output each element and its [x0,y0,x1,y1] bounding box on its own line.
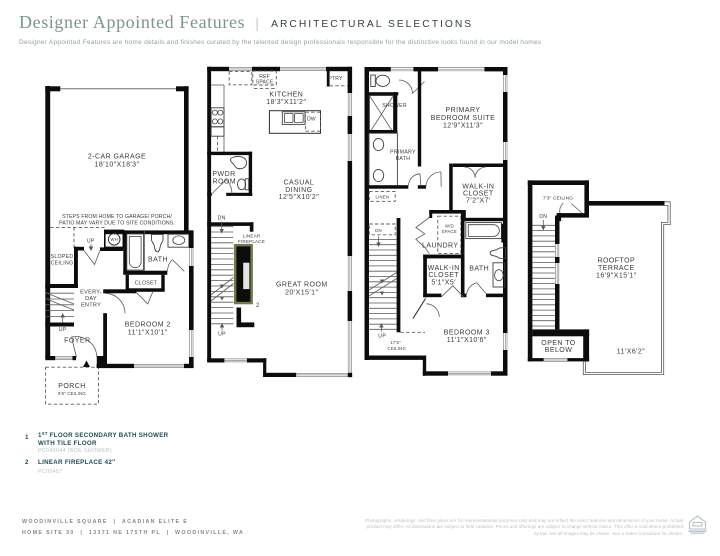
svg-text:W/D: W/D [445,223,454,228]
svg-text:7′2″X7′: 7′2″X7′ [466,197,491,204]
svg-text:BATH: BATH [396,156,411,162]
svg-text:GREAT ROOM: GREAT ROOM [276,282,328,289]
svg-text:WALK-IN: WALK-IN [462,183,494,190]
svg-text:18′10″X18′3″: 18′10″X18′3″ [95,162,140,169]
svg-text:BATH: BATH [469,266,489,273]
svg-text:UP: UP [59,327,67,333]
svg-text:CASUAL: CASUAL [284,180,315,187]
svg-text:WALK-IN: WALK-IN [428,265,460,272]
svg-text:CLOSET: CLOSET [135,280,158,286]
svg-text:UP: UP [87,238,95,244]
svg-text:DN: DN [375,228,382,233]
svg-text:PWDR: PWDR [212,171,235,178]
svg-text:SLOPED: SLOPED [51,254,74,260]
svg-text:2-CAR GARAGE: 2-CAR GARAGE [88,154,146,161]
svg-text:BELOW: BELOW [545,347,573,354]
svg-text:20′X15′1″: 20′X15′1″ [285,290,318,297]
svg-text:PORCH: PORCH [58,383,86,390]
svg-text:ENTRY: ENTRY [81,303,101,309]
svg-text:FOYER: FOYER [64,337,90,344]
svg-text:WH: WH [110,237,118,242]
svg-text:DINING: DINING [285,187,312,194]
svg-text:CEILING: CEILING [387,346,406,351]
svg-text:SPACE: SPACE [442,229,457,234]
svg-text:ROOM: ROOM [213,179,237,186]
svg-text:CEILING: CEILING [51,261,74,267]
svg-text:DN: DN [539,214,547,220]
svg-text:17′5″: 17′5″ [390,340,401,345]
svg-text:TERRACE: TERRACE [598,265,635,272]
svg-text:12′5″X10′2″: 12′5″X10′2″ [279,194,320,201]
svg-text:18′3″X11′2″: 18′3″X11′2″ [266,99,306,106]
svg-text:UP: UP [378,333,386,339]
svg-text:STEPS FROM HOME TO GARAGE/ POR: STEPS FROM HOME TO GARAGE/ PORCH/ [62,214,172,220]
svg-text:LAUNDRY: LAUNDRY [422,242,458,249]
svg-text:UP: UP [218,331,226,337]
svg-text:2: 2 [256,303,260,309]
svg-text:5′1″X5′: 5′1″X5′ [431,279,456,286]
svg-text:11′1″X10′1″: 11′1″X10′1″ [128,330,168,337]
svg-text:BEDROOM 2: BEDROOM 2 [125,322,171,329]
svg-text:11′1″X10′6″: 11′1″X10′6″ [447,337,487,344]
svg-text:FIREPLACE: FIREPLACE [238,239,265,244]
svg-text:BEDROOM SUITE: BEDROOM SUITE [431,115,496,122]
svg-text:ROOFTOP: ROOFTOP [597,257,635,264]
svg-text:PATIO MAY VARY DUE TO SITE CON: PATIO MAY VARY DUE TO SITE CONDITIONS. [59,221,175,227]
svg-text:EVERY-: EVERY- [80,290,102,296]
svg-text:CLOSET: CLOSET [428,272,459,279]
svg-text:9′6″ CEILING: 9′6″ CEILING [58,391,86,396]
svg-text:LINEN: LINEN [375,195,389,200]
svg-text:BATH: BATH [148,257,168,264]
svg-text:BEDROOM 3: BEDROOM 3 [444,330,490,337]
svg-text:12′9″X11′3″: 12′9″X11′3″ [443,123,483,130]
svg-text:SPACE: SPACE [256,80,274,86]
svg-text:DN: DN [218,215,226,221]
svg-text:PRIMARY: PRIMARY [446,107,481,114]
svg-text:OPEN TO: OPEN TO [541,340,576,347]
svg-text:7′3″ CEILING: 7′3″ CEILING [543,196,573,202]
svg-text:KITCHEN: KITCHEN [269,91,303,98]
svg-text:LINEAR: LINEAR [243,233,261,238]
svg-text:16′9″X15′1″: 16′9″X15′1″ [596,272,637,279]
svg-text:DW: DW [307,117,316,123]
svg-text:PRIMARY: PRIMARY [390,150,416,156]
svg-text:DAY: DAY [85,296,97,302]
svg-text:11′X6′2″: 11′X6′2″ [617,348,645,355]
svg-text:PTRY: PTRY [328,76,343,82]
